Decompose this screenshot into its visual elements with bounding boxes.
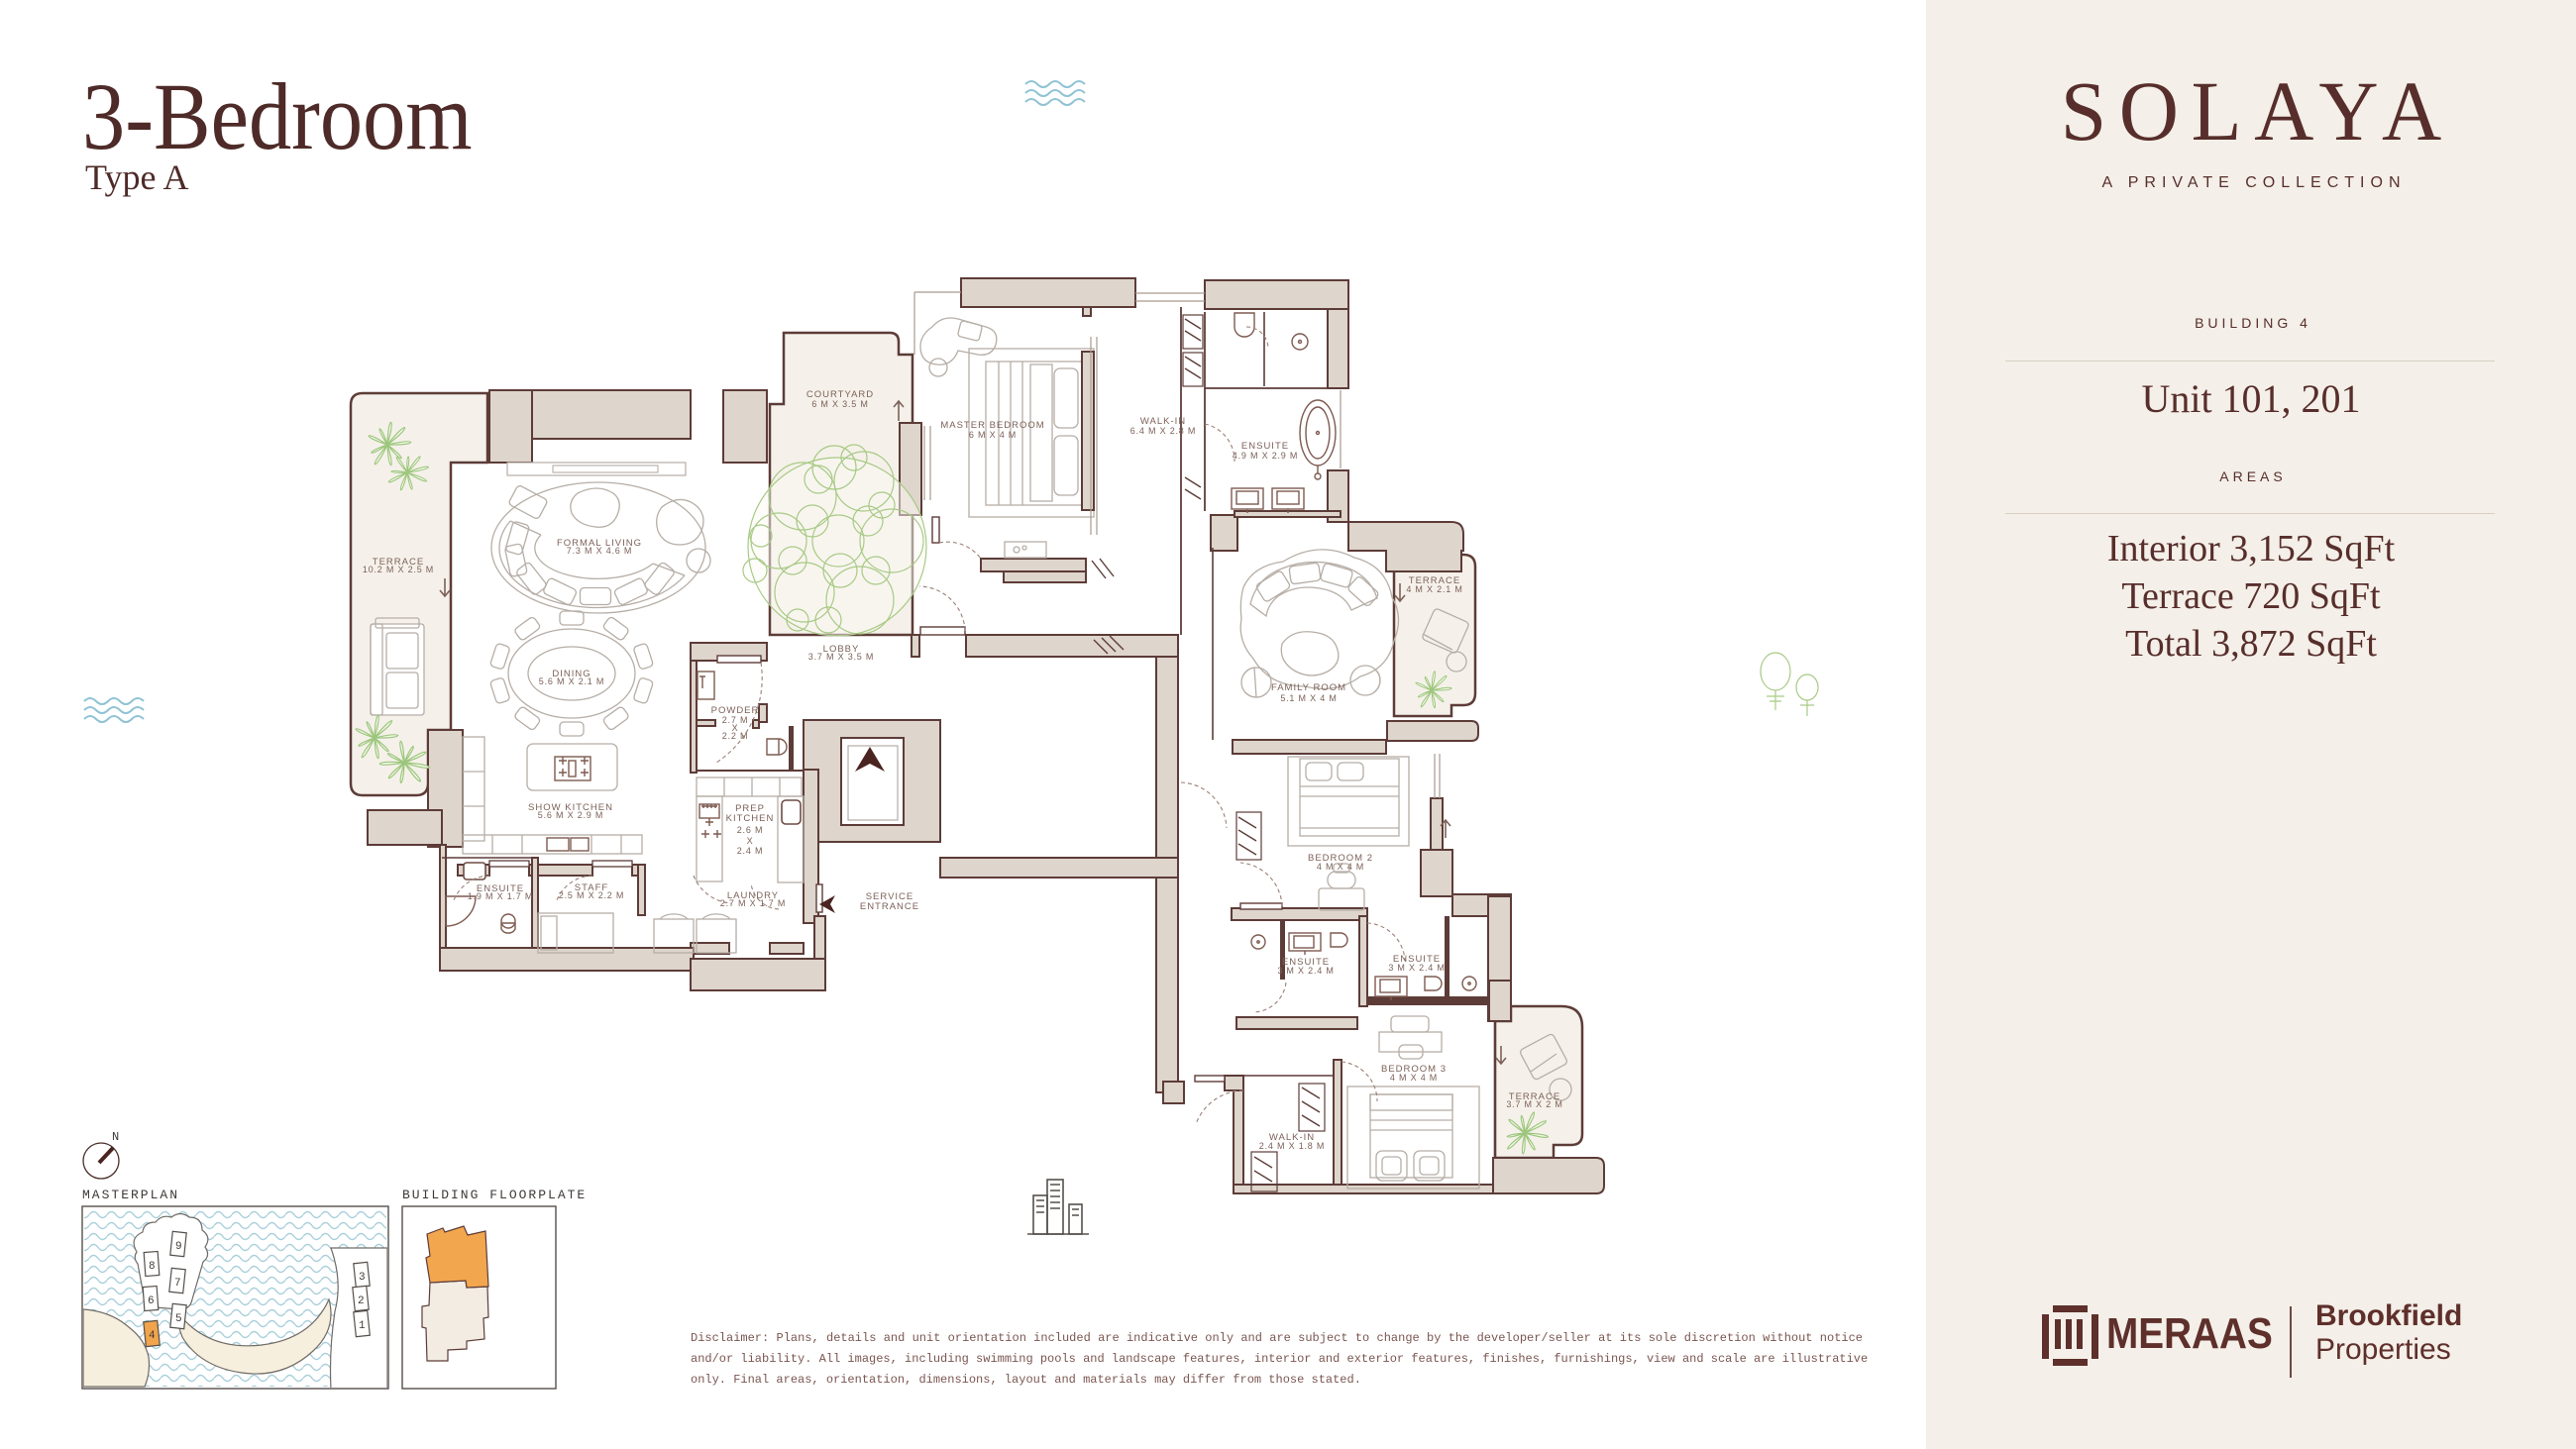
- svg-text:5.1 M X 4 M: 5.1 M X 4 M: [1280, 693, 1337, 703]
- svg-text:2.4 M X 1.8 M: 2.4 M X 1.8 M: [1259, 1141, 1325, 1151]
- svg-text:2.7 M X 1.7 M: 2.7 M X 1.7 M: [720, 898, 786, 908]
- svg-text:2.4 M: 2.4 M: [737, 846, 764, 856]
- svg-text:BUILDING FLOORPLATE: BUILDING FLOORPLATE: [402, 1188, 587, 1202]
- svg-text:4 M X 4 M: 4 M X 4 M: [1317, 862, 1364, 872]
- svg-text:7: 7: [174, 1278, 181, 1290]
- svg-text:6 M X 4 M: 6 M X 4 M: [969, 430, 1017, 440]
- svg-text:7.3 M X 4.6 M: 7.3 M X 4.6 M: [567, 546, 632, 556]
- svg-text:2.5 M X 2.2 M: 2.5 M X 2.2 M: [559, 890, 624, 900]
- svg-text:6 M X 3.5 M: 6 M X 3.5 M: [811, 399, 868, 409]
- svg-text:5: 5: [175, 1313, 182, 1325]
- svg-text:3 M X 2.4 M: 3 M X 2.4 M: [1277, 966, 1334, 976]
- svg-text:10.2 M X 2.5 M: 10.2 M X 2.5 M: [363, 565, 434, 574]
- svg-text:3.7 M X 2 M: 3.7 M X 2 M: [1506, 1099, 1562, 1109]
- svg-text:2.2 M: 2.2 M: [722, 731, 749, 741]
- svg-text:4: 4: [149, 1330, 156, 1342]
- svg-text:4.9 M X 2.9 M: 4.9 M X 2.9 M: [1233, 451, 1298, 461]
- svg-text:3 M X 2.4 M: 3 M X 2.4 M: [1388, 963, 1445, 973]
- svg-text:5.6 M X 2.1 M: 5.6 M X 2.1 M: [539, 676, 604, 686]
- svg-text:FAMILY ROOM: FAMILY ROOM: [1271, 682, 1346, 693]
- svg-text:1.9 M X 1.7 M: 1.9 M X 1.7 M: [468, 891, 533, 901]
- svg-text:N: N: [112, 1130, 119, 1144]
- svg-text:1: 1: [359, 1320, 366, 1332]
- svg-text:KITCHEN: KITCHEN: [726, 813, 775, 824]
- svg-text:2: 2: [358, 1295, 365, 1307]
- svg-text:9: 9: [175, 1241, 182, 1253]
- svg-text:5.6 M X 2.9 M: 5.6 M X 2.9 M: [538, 810, 603, 820]
- svg-text:3.7 M X 3.5 M: 3.7 M X 3.5 M: [808, 652, 874, 662]
- svg-text:6: 6: [148, 1295, 155, 1307]
- svg-text:8: 8: [149, 1261, 156, 1273]
- svg-text:MASTERPLAN: MASTERPLAN: [82, 1188, 179, 1202]
- svg-text:4 M X 2.1 M: 4 M X 2.1 M: [1406, 584, 1462, 594]
- svg-text:3: 3: [359, 1272, 366, 1284]
- svg-text:ENTRANCE: ENTRANCE: [860, 901, 919, 912]
- svg-text:2.6 M: 2.6 M: [737, 825, 764, 835]
- svg-text:X: X: [747, 836, 754, 846]
- svg-text:6.4 M X 2.8 M: 6.4 M X 2.8 M: [1130, 426, 1196, 436]
- svg-text:4 M X 4 M: 4 M X 4 M: [1390, 1073, 1438, 1083]
